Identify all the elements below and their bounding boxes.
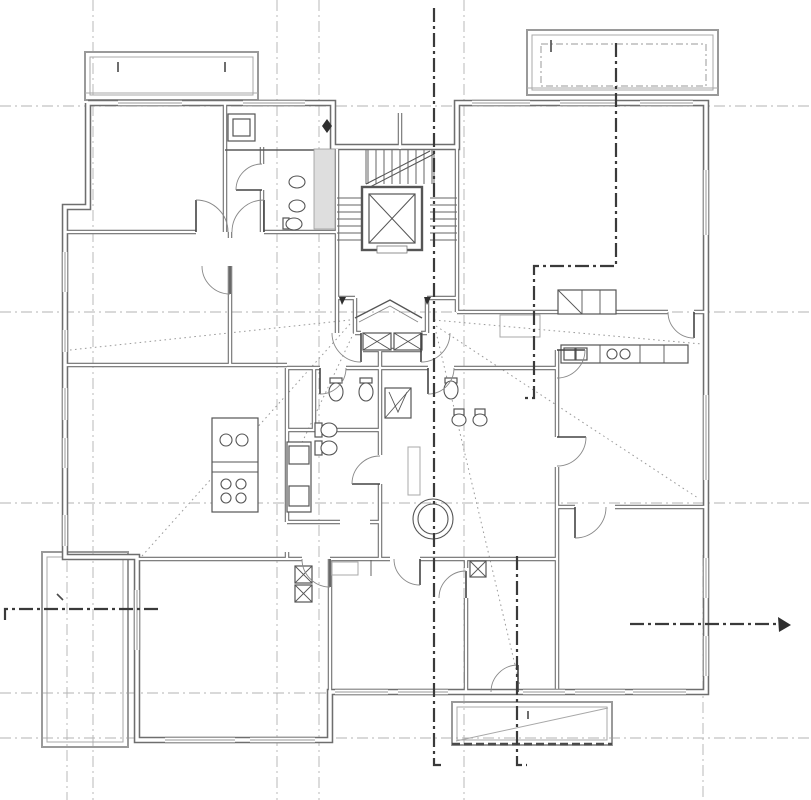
doors-layer: [196, 164, 694, 692]
elevator-door: [377, 246, 407, 253]
door-swing-arc: [202, 266, 230, 294]
fixture-rect: [360, 378, 372, 383]
sanitary-fixture: [359, 383, 373, 401]
section-line: [434, 8, 444, 765]
door-swing-arc: [421, 333, 450, 362]
sanitary-fixture: [289, 200, 305, 212]
balcony-overhead-dashed: [541, 44, 706, 86]
section-arrow: [778, 617, 791, 632]
door-swing-arc: [236, 164, 262, 190]
dotted-path: [70, 320, 350, 350]
door-swing-arc: [575, 507, 606, 538]
dotted-path: [434, 320, 702, 344]
floorplan-drawing: [0, 0, 811, 800]
entrance-canopy-inner: [359, 306, 418, 322]
sanitary-fixture: [473, 414, 487, 426]
door-swing-arc: [332, 333, 361, 362]
fixture-rect: [212, 418, 258, 512]
sanitary-fixture: [321, 423, 337, 437]
sanitary-fixture: [321, 441, 337, 455]
entry-arrow-mark: [339, 297, 346, 305]
fixture-rect: [408, 447, 420, 495]
fixture-rect: [314, 149, 335, 229]
floorplan-canvas: [0, 0, 811, 800]
fixture-rect: [289, 446, 309, 464]
balcony-outline: [527, 30, 718, 95]
door-swing-arc: [232, 200, 264, 232]
fixture-rect: [332, 562, 358, 575]
door-swing-arc: [439, 571, 466, 598]
sanitary-fixture: [289, 176, 305, 188]
door-swing-arc: [557, 437, 586, 466]
sanitary-fixture: [452, 414, 466, 426]
balcony-inner-line: [532, 35, 713, 90]
door-swing-arc: [394, 559, 420, 585]
sanitary-fixture: [444, 381, 458, 399]
fixture-rect: [289, 486, 309, 506]
door-swing-arc: [352, 456, 380, 484]
balcony-inner-line: [47, 557, 123, 742]
balcony-outline: [452, 702, 612, 745]
fixture-rect: [233, 119, 250, 136]
section-line: [517, 556, 527, 765]
balcony-inner-line: [90, 57, 253, 95]
door-swing-arc: [668, 312, 694, 338]
door-swing-arc: [491, 665, 518, 692]
tick-mark: [57, 594, 63, 600]
balcony-inner-line: [457, 707, 607, 740]
balcony-outline: [42, 552, 128, 747]
sanitary-fixture: [286, 218, 302, 230]
fixture-rect: [330, 378, 342, 383]
fixture-rect: [558, 290, 616, 314]
entrance-canopy: [355, 300, 422, 318]
balcony-slope-line: [456, 708, 608, 741]
